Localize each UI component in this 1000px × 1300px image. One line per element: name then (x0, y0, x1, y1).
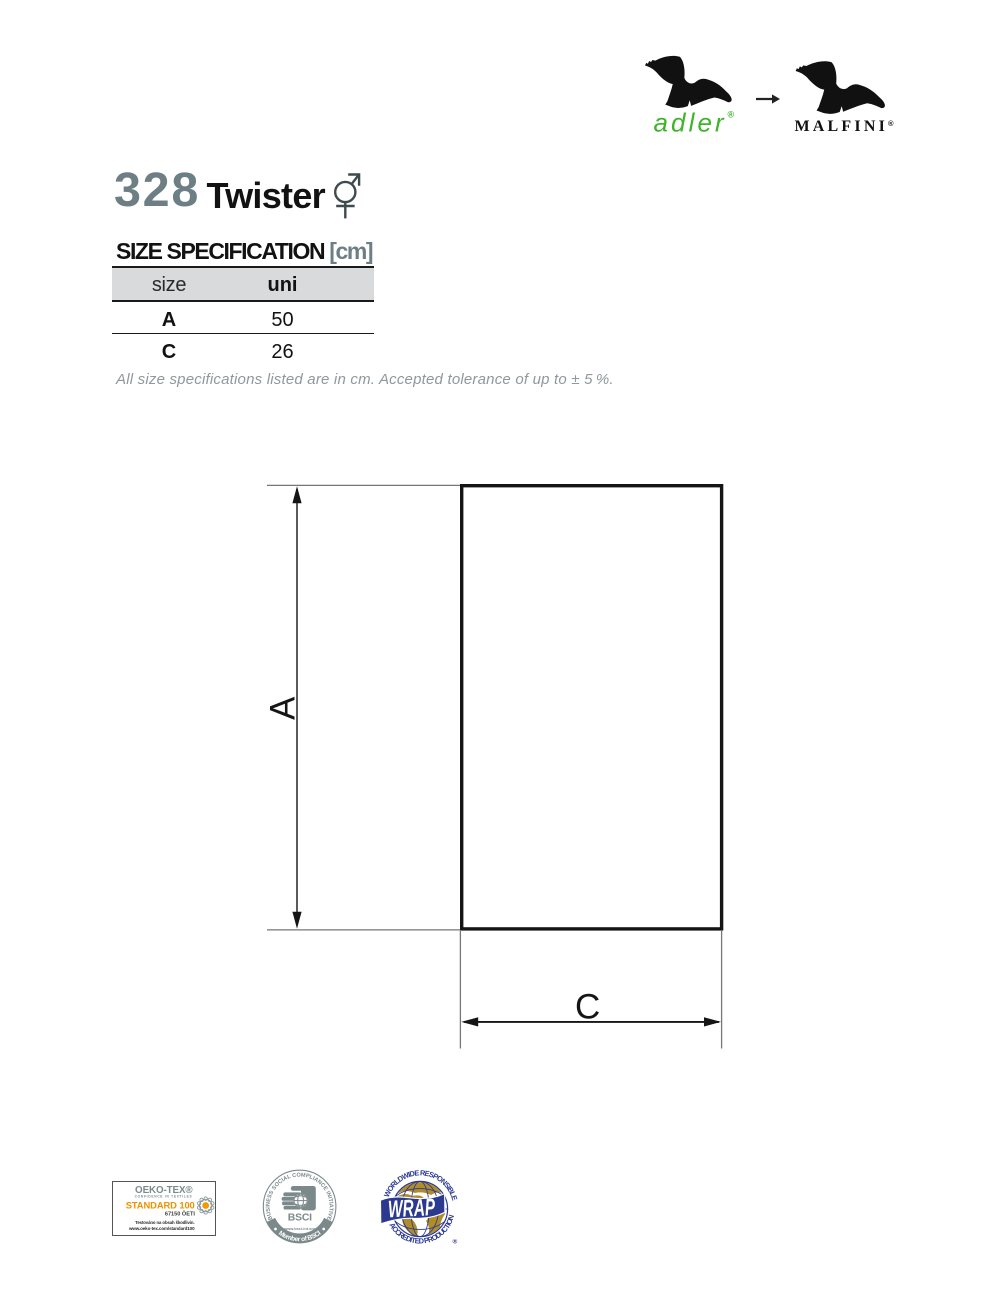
svg-text:C: C (575, 988, 600, 1027)
svg-text:adler: adler (654, 108, 727, 138)
svg-text:®: ® (453, 1238, 458, 1246)
svg-text:Testováno na obsah škodlivin.: Testováno na obsah škodlivin. (135, 1220, 194, 1225)
svg-text:®: ® (888, 119, 894, 128)
svg-text:MALFINI: MALFINI (795, 118, 889, 135)
svg-text:WRAP: WRAP (387, 1194, 436, 1223)
svg-text:CONFIDENCE IN TEXTILES: CONFIDENCE IN TEXTILES (135, 1194, 193, 1198)
svg-text:67150 ÖETI: 67150 ÖETI (165, 1210, 196, 1217)
svg-text:A: A (264, 696, 303, 720)
svg-text:®: ® (728, 110, 735, 120)
svg-text:www.bsci-int.org: www.bsci-int.org (283, 1226, 316, 1231)
svg-text:www.oeko-tex.com/standard100: www.oeko-tex.com/standard100 (128, 1226, 195, 1231)
svg-text:STANDARD 100: STANDARD 100 (126, 1199, 195, 1210)
svg-text:BSCI: BSCI (288, 1213, 312, 1224)
